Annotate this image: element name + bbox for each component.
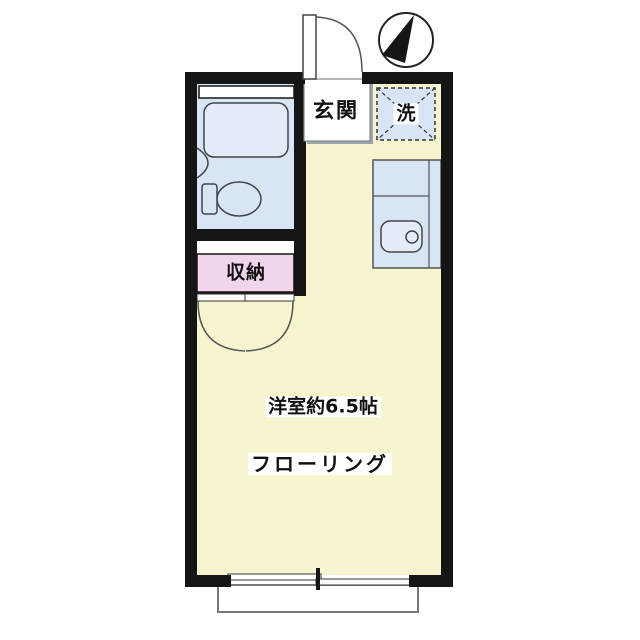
bathroom-door-opening [197,241,294,254]
bathtub-icon [204,103,288,157]
toilet-tank-icon [202,184,217,214]
kitchen-faucet-icon [406,231,418,243]
washer-label: 洗 [393,104,418,125]
sliding-window-center-stile [316,568,320,590]
sliding-window-right-pane [316,579,412,585]
flooring-label: フローリング [248,453,392,475]
right-wall [441,72,453,587]
toilet-bowl-icon [217,182,261,216]
bottom-wall-left [185,575,231,587]
top-wall-left [185,72,305,84]
closet-door-left-leaf [197,294,245,301]
bottom-wall-right [409,575,453,587]
sliding-window-left-pane [228,574,321,580]
entrance-label: 玄関 [313,101,359,122]
floor-plan: 玄関 洗 収納 洋室約6.5帖 フローリング [0,0,640,640]
floor-plan-drawing [0,0,640,640]
closet-door-right-leaf [245,294,294,301]
storage-label: 収納 [226,264,266,283]
bathroom-bottom-wall [185,229,306,241]
bathroom-window [199,86,294,98]
entrance-door-arc [316,17,362,72]
entrance-door-leaf [303,15,316,79]
main-room-label: 洋室約6.5帖 [265,397,381,418]
left-wall [185,72,197,587]
top-wall-right [362,72,453,84]
